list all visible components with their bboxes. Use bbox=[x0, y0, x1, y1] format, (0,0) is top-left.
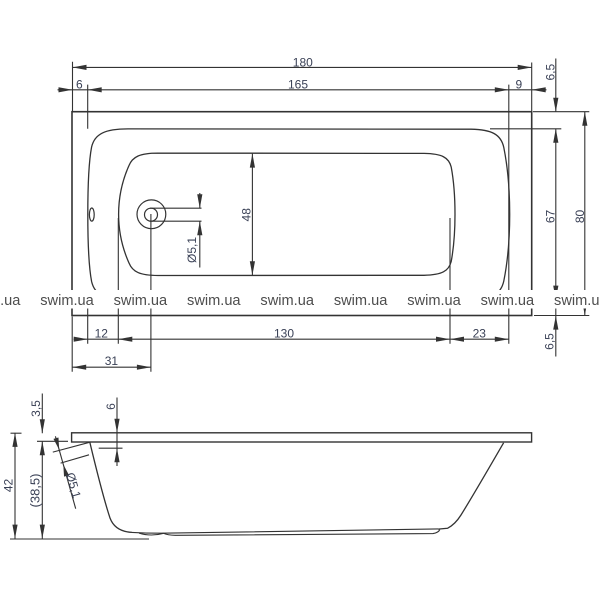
svg-text:swim.ua: swim.ua bbox=[187, 293, 241, 309]
svg-text:swim.ua: swim.ua bbox=[334, 293, 388, 309]
svg-text:swim.ua: swim.ua bbox=[260, 293, 314, 309]
svg-text:23: 23 bbox=[473, 327, 487, 341]
svg-text:6,5: 6,5 bbox=[543, 64, 557, 81]
svg-text:31: 31 bbox=[105, 354, 119, 368]
svg-text:9: 9 bbox=[515, 77, 522, 91]
svg-text:Ø5,1: Ø5,1 bbox=[185, 237, 199, 263]
svg-text:(38,5): (38,5) bbox=[28, 474, 43, 508]
svg-text:swim.ua: swim.ua bbox=[554, 293, 600, 309]
svg-text:48: 48 bbox=[240, 208, 254, 222]
svg-text:6: 6 bbox=[104, 403, 118, 410]
svg-text:swim.ua: swim.ua bbox=[40, 293, 94, 309]
svg-text:6: 6 bbox=[76, 77, 83, 91]
svg-text:165: 165 bbox=[288, 78, 308, 92]
svg-text:180: 180 bbox=[293, 55, 313, 69]
svg-text:130: 130 bbox=[274, 327, 294, 341]
svg-text:67: 67 bbox=[544, 210, 558, 224]
svg-text:42: 42 bbox=[2, 479, 16, 493]
svg-text:swim.ua: swim.ua bbox=[407, 293, 461, 309]
svg-text:12: 12 bbox=[95, 326, 109, 340]
svg-text:swim.ua: swim.ua bbox=[0, 293, 21, 309]
svg-text:80: 80 bbox=[573, 210, 587, 224]
svg-text:3,5: 3,5 bbox=[29, 400, 43, 417]
svg-text:6,5: 6,5 bbox=[543, 333, 557, 350]
svg-text:swim.ua: swim.ua bbox=[481, 293, 535, 309]
svg-text:swim.ua: swim.ua bbox=[114, 293, 168, 309]
